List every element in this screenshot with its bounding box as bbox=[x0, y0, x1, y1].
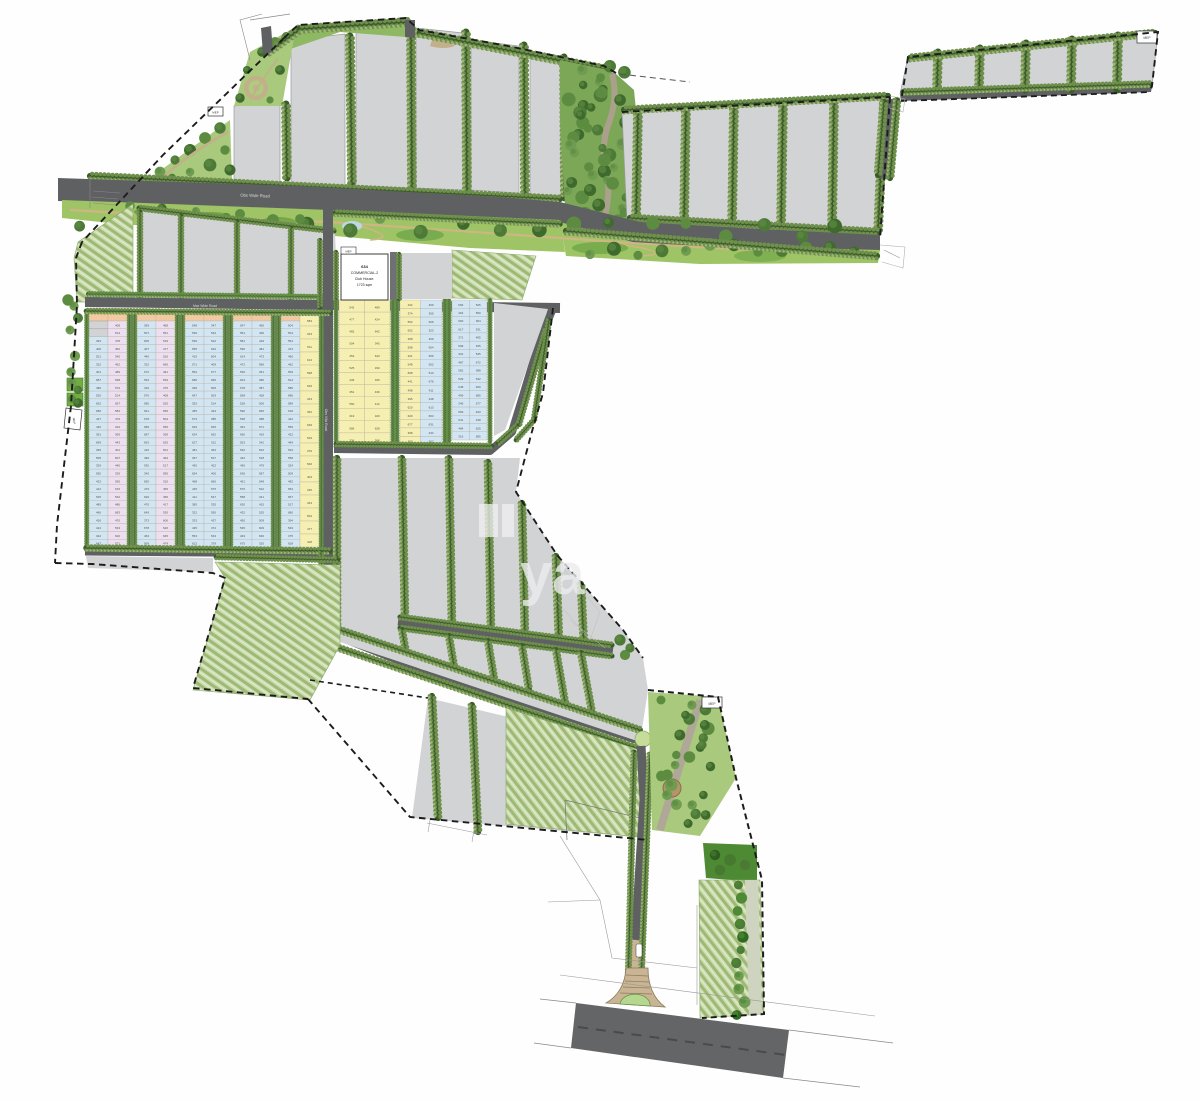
svg-text:496: 496 bbox=[144, 456, 149, 460]
svg-text:368: 368 bbox=[408, 431, 413, 435]
svg-text:559: 559 bbox=[288, 425, 293, 429]
svg-text:656: 656 bbox=[429, 354, 434, 358]
svg-text:310: 310 bbox=[144, 386, 149, 390]
svg-text:669: 669 bbox=[96, 440, 101, 444]
svg-text:577: 577 bbox=[476, 402, 481, 406]
svg-text:442: 442 bbox=[240, 456, 245, 460]
svg-text:469: 469 bbox=[429, 303, 434, 307]
svg-text:470: 470 bbox=[115, 518, 120, 522]
svg-text:368: 368 bbox=[408, 337, 413, 341]
svg-text:430: 430 bbox=[259, 331, 264, 335]
svg-text:595: 595 bbox=[211, 511, 216, 515]
svg-text:462: 462 bbox=[288, 362, 293, 366]
svg-text:687: 687 bbox=[96, 378, 101, 382]
svg-text:504: 504 bbox=[163, 417, 168, 421]
svg-text:345: 345 bbox=[375, 342, 380, 346]
svg-text:437: 437 bbox=[211, 518, 216, 522]
svg-text:403: 403 bbox=[307, 475, 312, 479]
svg-text:517: 517 bbox=[163, 464, 168, 468]
svg-text:439: 439 bbox=[349, 378, 354, 382]
svg-text:655: 655 bbox=[192, 347, 197, 351]
svg-text:545: 545 bbox=[476, 352, 481, 356]
svg-text:451: 451 bbox=[240, 479, 245, 483]
svg-text:617: 617 bbox=[458, 328, 463, 332]
svg-text:677: 677 bbox=[211, 370, 216, 374]
svg-text:477: 477 bbox=[307, 527, 312, 531]
svg-text:506: 506 bbox=[259, 401, 264, 405]
svg-text:620: 620 bbox=[115, 534, 120, 538]
svg-text:391: 391 bbox=[96, 433, 101, 437]
svg-text:473: 473 bbox=[259, 355, 264, 359]
svg-text:393: 393 bbox=[96, 339, 101, 343]
svg-text:604: 604 bbox=[429, 346, 434, 350]
svg-text:606: 606 bbox=[429, 320, 434, 324]
svg-text:586: 586 bbox=[349, 426, 354, 430]
svg-text:620: 620 bbox=[163, 526, 168, 530]
svg-text:478: 478 bbox=[115, 339, 120, 343]
svg-text:590: 590 bbox=[240, 409, 245, 413]
svg-text:486: 486 bbox=[115, 503, 120, 507]
svg-text:422: 422 bbox=[288, 417, 293, 421]
svg-text:329: 329 bbox=[96, 464, 101, 468]
svg-text:548: 548 bbox=[408, 363, 413, 367]
svg-text:445: 445 bbox=[115, 464, 120, 468]
svg-text:419: 419 bbox=[259, 433, 264, 437]
svg-text:489: 489 bbox=[96, 503, 101, 507]
svg-text:587: 587 bbox=[259, 472, 264, 476]
svg-text:MEP: MEP bbox=[72, 417, 77, 424]
svg-text:332: 332 bbox=[144, 362, 149, 366]
svg-text:657: 657 bbox=[288, 495, 293, 499]
svg-text:605: 605 bbox=[144, 339, 149, 343]
svg-text:421: 421 bbox=[408, 354, 413, 358]
svg-text:465: 465 bbox=[163, 487, 168, 491]
svg-text:424: 424 bbox=[96, 526, 101, 530]
svg-text:412: 412 bbox=[96, 487, 101, 491]
svg-text:625: 625 bbox=[163, 440, 168, 444]
svg-text:678: 678 bbox=[240, 386, 245, 390]
svg-text:ya: ya bbox=[520, 542, 585, 607]
svg-text:322: 322 bbox=[192, 511, 197, 515]
svg-text:411: 411 bbox=[192, 495, 197, 499]
svg-text:643: 643 bbox=[476, 410, 481, 414]
svg-text:385: 385 bbox=[211, 417, 216, 421]
svg-text:645: 645 bbox=[163, 534, 168, 538]
svg-text:686: 686 bbox=[288, 394, 293, 398]
svg-text:426: 426 bbox=[96, 518, 101, 522]
svg-text:509: 509 bbox=[288, 370, 293, 374]
svg-text:657: 657 bbox=[115, 401, 120, 405]
svg-text:341: 341 bbox=[259, 495, 264, 499]
svg-text:649: 649 bbox=[307, 384, 312, 388]
svg-text:422: 422 bbox=[211, 464, 216, 468]
svg-text:525: 525 bbox=[476, 303, 481, 307]
svg-text:654: 654 bbox=[192, 472, 197, 476]
svg-text:509: 509 bbox=[259, 518, 264, 522]
svg-text:365: 365 bbox=[96, 448, 101, 452]
svg-text:351: 351 bbox=[259, 370, 264, 374]
svg-text:449: 449 bbox=[288, 440, 293, 444]
svg-text:461: 461 bbox=[163, 370, 168, 374]
svg-text:407: 407 bbox=[144, 347, 149, 351]
svg-text:443: 443 bbox=[115, 440, 120, 444]
svg-text:468: 468 bbox=[163, 324, 168, 328]
svg-text:622: 622 bbox=[192, 542, 197, 546]
svg-text:489: 489 bbox=[115, 370, 120, 374]
svg-text:499: 499 bbox=[458, 393, 463, 397]
svg-text:385: 385 bbox=[192, 503, 197, 507]
svg-text:649: 649 bbox=[144, 511, 149, 515]
svg-text:571: 571 bbox=[192, 362, 197, 366]
svg-text:502: 502 bbox=[429, 363, 434, 367]
svg-text:1723 sqm: 1723 sqm bbox=[357, 283, 372, 287]
svg-text:498: 498 bbox=[408, 388, 413, 392]
svg-text:651: 651 bbox=[163, 331, 168, 335]
svg-text:379: 379 bbox=[307, 449, 312, 453]
svg-text:320: 320 bbox=[375, 414, 380, 418]
svg-text:464: 464 bbox=[163, 456, 168, 460]
svg-text:547: 547 bbox=[211, 495, 216, 499]
svg-text:511: 511 bbox=[307, 345, 312, 349]
svg-text:576: 576 bbox=[144, 394, 149, 398]
svg-text:517: 517 bbox=[288, 503, 293, 507]
svg-text:434: 434 bbox=[429, 431, 434, 435]
svg-text:535: 535 bbox=[240, 526, 245, 530]
svg-text:369: 369 bbox=[115, 433, 120, 437]
svg-text:452: 452 bbox=[115, 362, 120, 366]
svg-text:412: 412 bbox=[375, 402, 380, 406]
svg-text:325: 325 bbox=[375, 378, 380, 382]
svg-text:598: 598 bbox=[408, 346, 413, 350]
svg-text:323: 323 bbox=[429, 329, 434, 333]
svg-text:481: 481 bbox=[259, 347, 264, 351]
svg-text:678: 678 bbox=[144, 526, 149, 530]
svg-text:543: 543 bbox=[211, 534, 216, 538]
svg-text:345: 345 bbox=[115, 355, 120, 359]
svg-text:618: 618 bbox=[288, 409, 293, 413]
svg-text:639: 639 bbox=[307, 423, 312, 427]
svg-text:553: 553 bbox=[240, 440, 245, 444]
svg-text:529: 529 bbox=[458, 377, 463, 381]
svg-text:649: 649 bbox=[192, 425, 197, 429]
svg-text:365: 365 bbox=[115, 479, 120, 483]
svg-text:585: 585 bbox=[144, 401, 149, 405]
svg-text:634: 634 bbox=[192, 433, 197, 437]
svg-text:487: 487 bbox=[458, 360, 463, 364]
svg-text:MEP: MEP bbox=[345, 250, 351, 254]
svg-text:312: 312 bbox=[211, 440, 216, 444]
svg-text:364: 364 bbox=[476, 319, 481, 323]
svg-text:627: 627 bbox=[192, 440, 197, 444]
svg-text:550: 550 bbox=[96, 472, 101, 476]
svg-text:364: 364 bbox=[211, 448, 216, 452]
svg-text:504: 504 bbox=[349, 342, 354, 346]
svg-text:472: 472 bbox=[240, 362, 245, 366]
svg-text:549: 549 bbox=[288, 526, 293, 530]
svg-text:613: 613 bbox=[429, 405, 434, 409]
svg-text:415: 415 bbox=[259, 503, 264, 507]
svg-text:604: 604 bbox=[288, 324, 293, 328]
svg-text:411: 411 bbox=[429, 388, 434, 392]
svg-text:661: 661 bbox=[144, 409, 149, 413]
svg-text:554: 554 bbox=[288, 339, 293, 343]
svg-text:514: 514 bbox=[211, 401, 216, 405]
svg-text:375: 375 bbox=[163, 386, 168, 390]
svg-text:514: 514 bbox=[115, 394, 120, 398]
svg-text:666: 666 bbox=[163, 362, 168, 366]
svg-text:583: 583 bbox=[307, 319, 312, 323]
svg-text:428: 428 bbox=[259, 394, 264, 398]
svg-text:536: 536 bbox=[240, 370, 245, 374]
svg-text:480: 480 bbox=[96, 386, 101, 390]
svg-text:470: 470 bbox=[144, 503, 149, 507]
svg-text:638: 638 bbox=[115, 378, 120, 382]
svg-text:652: 652 bbox=[408, 329, 413, 333]
svg-text:436: 436 bbox=[240, 464, 245, 468]
svg-text:641: 641 bbox=[458, 418, 463, 422]
svg-text:540: 540 bbox=[240, 448, 245, 452]
svg-text:349: 349 bbox=[240, 534, 245, 538]
svg-text:522: 522 bbox=[259, 448, 264, 452]
svg-text:342: 342 bbox=[259, 440, 264, 444]
svg-text:477: 477 bbox=[163, 347, 168, 351]
svg-text:536: 536 bbox=[192, 331, 197, 335]
svg-text:489: 489 bbox=[375, 306, 380, 310]
svg-text:575: 575 bbox=[211, 487, 216, 491]
svg-text:430: 430 bbox=[192, 464, 197, 468]
svg-text:333: 333 bbox=[192, 518, 197, 522]
svg-text:527: 527 bbox=[211, 456, 216, 460]
svg-text:516: 516 bbox=[163, 355, 168, 359]
svg-text:409: 409 bbox=[211, 362, 216, 366]
svg-text:Obs Wide Road: Obs Wide Road bbox=[240, 192, 270, 198]
svg-text:345: 345 bbox=[144, 472, 149, 476]
svg-text:568: 568 bbox=[240, 394, 245, 398]
svg-text:452: 452 bbox=[349, 354, 354, 358]
svg-text:495: 495 bbox=[476, 336, 481, 340]
svg-text:589: 589 bbox=[288, 401, 293, 405]
svg-text:613: 613 bbox=[307, 358, 312, 362]
svg-text:609: 609 bbox=[259, 526, 264, 530]
svg-text:550: 550 bbox=[349, 402, 354, 406]
svg-text:388: 388 bbox=[259, 417, 264, 421]
svg-text:522: 522 bbox=[259, 487, 264, 491]
svg-text:505: 505 bbox=[96, 456, 101, 460]
svg-text:656: 656 bbox=[163, 425, 168, 429]
svg-text:335: 335 bbox=[307, 488, 312, 492]
svg-text:666: 666 bbox=[211, 479, 216, 483]
svg-text:545: 545 bbox=[96, 495, 101, 499]
svg-text:548: 548 bbox=[192, 324, 197, 328]
svg-text:331: 331 bbox=[458, 352, 463, 356]
svg-text:417: 417 bbox=[163, 503, 168, 507]
svg-text:320: 320 bbox=[259, 542, 264, 546]
svg-text:660: 660 bbox=[458, 319, 463, 323]
svg-text:543: 543 bbox=[211, 331, 216, 335]
svg-text:524: 524 bbox=[288, 378, 293, 382]
svg-text:408: 408 bbox=[115, 324, 120, 328]
svg-text:552: 552 bbox=[192, 370, 197, 374]
svg-text:479: 479 bbox=[115, 417, 120, 421]
svg-text:484: 484 bbox=[458, 426, 463, 430]
svg-text:357: 357 bbox=[192, 456, 197, 460]
svg-text:558: 558 bbox=[240, 495, 245, 499]
svg-text:400: 400 bbox=[211, 472, 216, 476]
svg-text:514: 514 bbox=[115, 331, 120, 335]
svg-text:628: 628 bbox=[375, 426, 380, 430]
svg-text:648: 648 bbox=[458, 385, 463, 389]
svg-text:586: 586 bbox=[259, 362, 264, 366]
svg-text:335: 335 bbox=[211, 503, 216, 507]
svg-text:666: 666 bbox=[211, 378, 216, 382]
svg-text:422: 422 bbox=[288, 433, 293, 437]
svg-text:466: 466 bbox=[96, 511, 101, 515]
svg-text:642: 642 bbox=[375, 330, 380, 334]
svg-text:395: 395 bbox=[408, 397, 413, 401]
svg-text:573: 573 bbox=[192, 417, 197, 421]
svg-text:319: 319 bbox=[349, 414, 354, 418]
svg-text:636: 636 bbox=[240, 472, 245, 476]
svg-text:330: 330 bbox=[375, 366, 380, 370]
svg-text:448: 448 bbox=[476, 418, 481, 422]
svg-text:525: 525 bbox=[349, 366, 354, 370]
svg-text:675: 675 bbox=[240, 542, 245, 546]
svg-text:635: 635 bbox=[476, 344, 481, 348]
svg-text:615: 615 bbox=[115, 487, 120, 491]
svg-text:687: 687 bbox=[144, 433, 149, 437]
svg-text:391: 391 bbox=[240, 425, 245, 429]
svg-text:632: 632 bbox=[211, 347, 216, 351]
svg-text:671: 671 bbox=[259, 425, 264, 429]
svg-text:419: 419 bbox=[192, 355, 197, 359]
svg-text:436: 436 bbox=[375, 390, 380, 394]
svg-text:399: 399 bbox=[163, 433, 168, 437]
svg-text:369: 369 bbox=[144, 324, 149, 328]
svg-text:593: 593 bbox=[163, 378, 168, 382]
svg-text:396: 396 bbox=[192, 386, 197, 390]
svg-text:662: 662 bbox=[211, 433, 216, 437]
svg-text:434: 434 bbox=[211, 409, 216, 413]
svg-text:560: 560 bbox=[476, 311, 481, 315]
svg-text:677: 677 bbox=[408, 422, 413, 426]
svg-text:598: 598 bbox=[307, 371, 312, 375]
svg-text:440: 440 bbox=[144, 355, 149, 359]
svg-text:324: 324 bbox=[288, 464, 293, 468]
svg-text:538: 538 bbox=[240, 417, 245, 421]
svg-text:536: 536 bbox=[192, 339, 197, 343]
svg-text:345: 345 bbox=[458, 402, 463, 406]
svg-text:400: 400 bbox=[96, 347, 101, 351]
svg-text:533: 533 bbox=[144, 378, 149, 382]
svg-text:570: 570 bbox=[115, 386, 120, 390]
svg-text:418: 418 bbox=[307, 540, 312, 544]
svg-text:683: 683 bbox=[115, 511, 120, 515]
svg-text:522: 522 bbox=[211, 339, 216, 343]
svg-text:387: 387 bbox=[259, 386, 264, 390]
svg-text:625: 625 bbox=[476, 426, 481, 430]
svg-text:Max Wide Road: Max Wide Road bbox=[193, 304, 217, 308]
svg-text:513: 513 bbox=[429, 371, 434, 375]
svg-text:400: 400 bbox=[476, 385, 481, 389]
svg-text:435: 435 bbox=[192, 526, 197, 530]
svg-text:446: 446 bbox=[96, 425, 101, 429]
svg-text:432: 432 bbox=[408, 303, 413, 307]
svg-text:533: 533 bbox=[288, 448, 293, 452]
svg-text:Club House:: Club House: bbox=[355, 277, 374, 281]
svg-text:532: 532 bbox=[476, 377, 481, 381]
svg-text:450: 450 bbox=[240, 518, 245, 522]
svg-text:347: 347 bbox=[211, 324, 216, 328]
svg-text:348: 348 bbox=[429, 397, 434, 401]
svg-text:676: 676 bbox=[429, 380, 434, 384]
svg-text:652: 652 bbox=[288, 487, 293, 491]
svg-text:490: 490 bbox=[288, 355, 293, 359]
svg-text:380: 380 bbox=[259, 378, 264, 382]
svg-text:686: 686 bbox=[96, 409, 101, 413]
svg-text:533: 533 bbox=[115, 526, 120, 530]
svg-text:647: 647 bbox=[192, 394, 197, 398]
svg-text:474: 474 bbox=[163, 542, 168, 546]
svg-text:437: 437 bbox=[96, 417, 101, 421]
svg-text:352: 352 bbox=[307, 410, 312, 414]
svg-text:371: 371 bbox=[458, 336, 463, 340]
svg-text:525: 525 bbox=[259, 511, 264, 515]
svg-text:322: 322 bbox=[96, 362, 101, 366]
svg-text:653: 653 bbox=[144, 440, 149, 444]
svg-text:552: 552 bbox=[408, 320, 413, 324]
svg-text:MEP: MEP bbox=[1144, 36, 1151, 40]
svg-text:582: 582 bbox=[458, 369, 463, 373]
svg-text:563: 563 bbox=[211, 394, 216, 398]
svg-text:631: 631 bbox=[429, 422, 434, 426]
svg-text:650: 650 bbox=[163, 409, 168, 413]
svg-text:482: 482 bbox=[288, 479, 293, 483]
svg-text:584: 584 bbox=[115, 409, 120, 413]
svg-text:324: 324 bbox=[115, 425, 120, 429]
svg-text:604: 604 bbox=[211, 355, 216, 359]
svg-text:548: 548 bbox=[259, 479, 264, 483]
svg-text:456: 456 bbox=[259, 324, 264, 328]
svg-text:481: 481 bbox=[192, 448, 197, 452]
svg-text:689: 689 bbox=[144, 425, 149, 429]
svg-text:388: 388 bbox=[476, 369, 481, 373]
svg-text:452: 452 bbox=[115, 347, 120, 351]
svg-text:443: 443 bbox=[307, 501, 312, 505]
svg-text:394: 394 bbox=[288, 518, 293, 522]
svg-text:375: 375 bbox=[288, 534, 293, 538]
svg-text:546: 546 bbox=[307, 462, 312, 466]
svg-text:532: 532 bbox=[115, 495, 120, 499]
svg-text:365: 365 bbox=[429, 312, 434, 316]
svg-text:329: 329 bbox=[115, 472, 120, 476]
svg-text:520: 520 bbox=[96, 394, 101, 398]
svg-text:463: 463 bbox=[144, 534, 149, 538]
svg-text:482: 482 bbox=[349, 330, 354, 334]
svg-text:652: 652 bbox=[96, 401, 101, 405]
svg-text:585: 585 bbox=[476, 435, 481, 439]
svg-text:529: 529 bbox=[307, 436, 312, 440]
svg-text:316: 316 bbox=[458, 435, 463, 439]
svg-text:645: 645 bbox=[211, 425, 216, 429]
svg-text:Obs Villa Road: Obs Villa Road bbox=[324, 409, 328, 432]
svg-text:468: 468 bbox=[192, 479, 197, 483]
svg-text:547: 547 bbox=[240, 324, 245, 328]
svg-text:629: 629 bbox=[144, 495, 149, 499]
svg-text:378: 378 bbox=[211, 542, 216, 546]
svg-text:663: 663 bbox=[429, 414, 434, 418]
svg-text:313: 313 bbox=[288, 347, 293, 351]
svg-text:650: 650 bbox=[144, 479, 149, 483]
